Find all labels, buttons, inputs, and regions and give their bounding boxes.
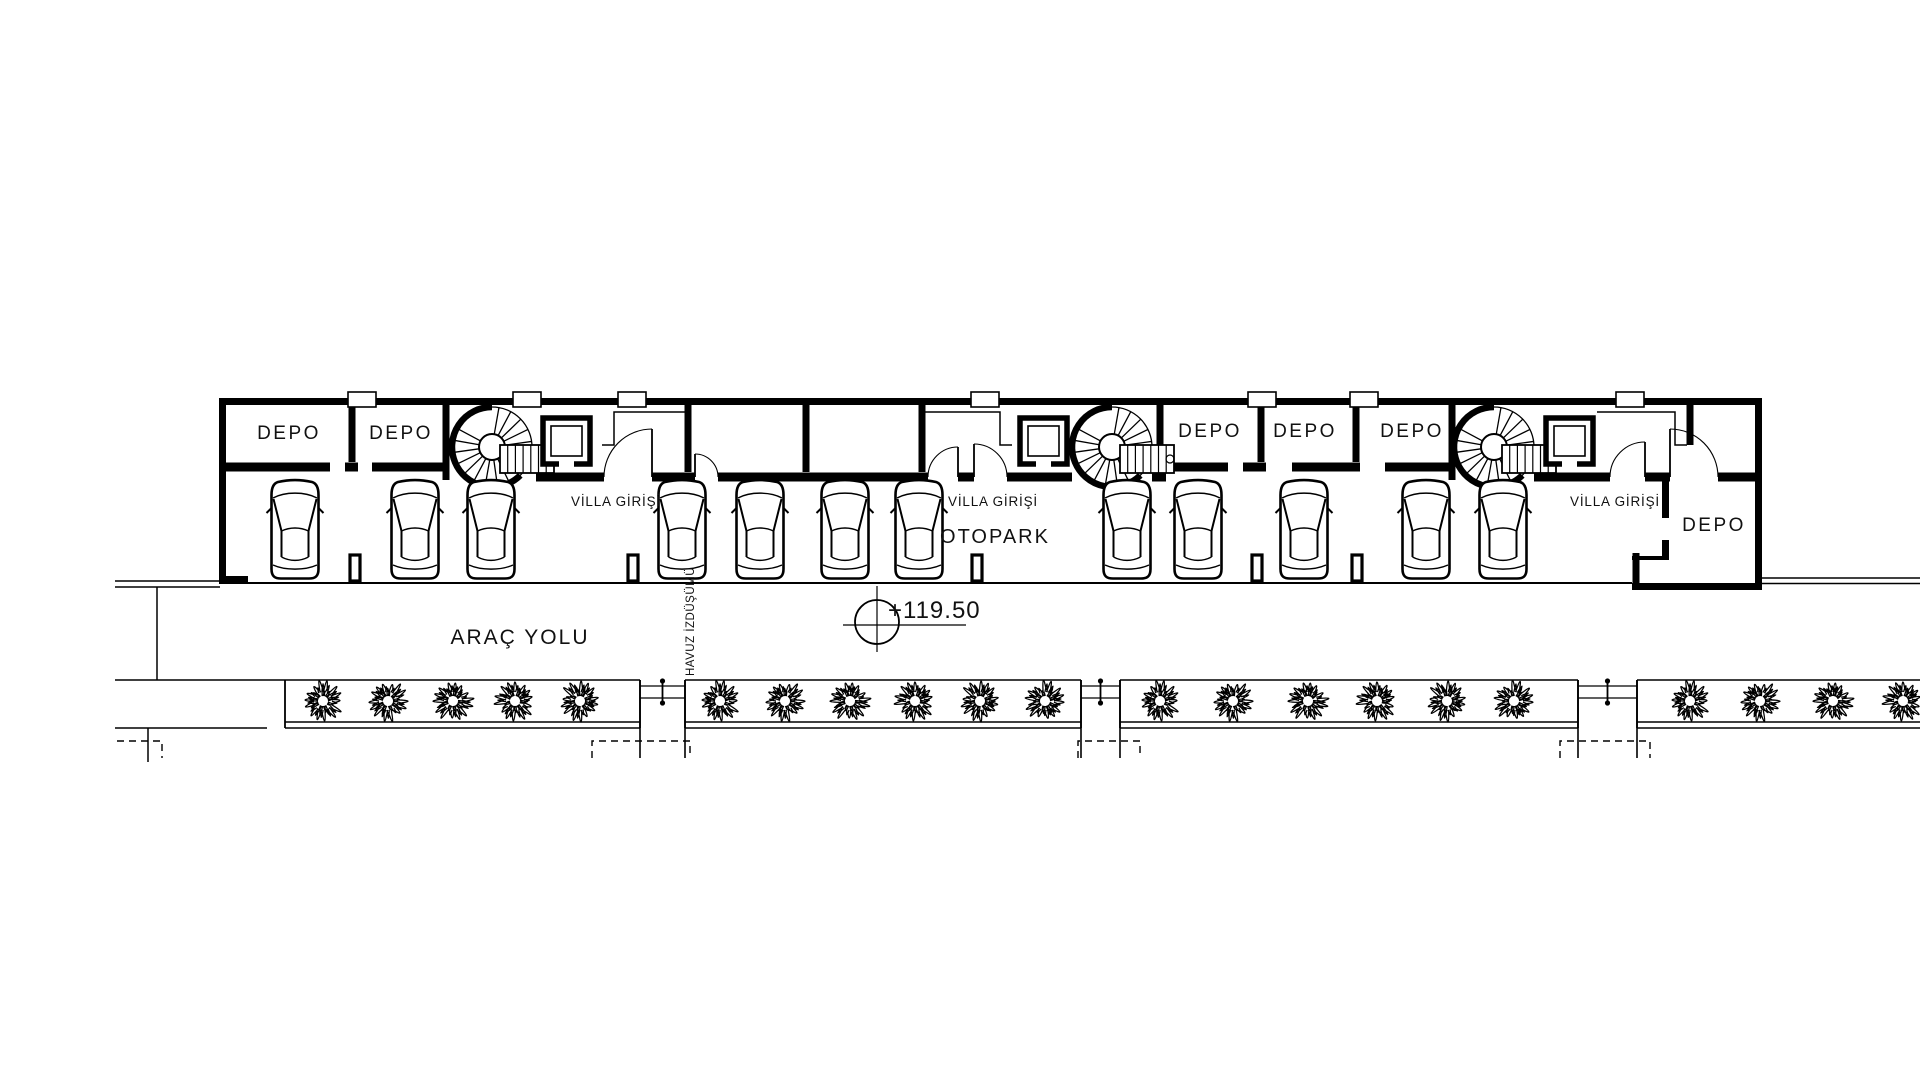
vent-opening (1350, 392, 1378, 407)
shrub-icon (1733, 674, 1787, 728)
label-depo: DEPO (1273, 421, 1337, 442)
spiral-stairs (452, 407, 1556, 487)
vent-opening (1616, 392, 1644, 407)
shrub-icon (1018, 675, 1072, 728)
car-icon (817, 480, 874, 578)
label-elevation: +119.50 (888, 597, 981, 624)
label-depo: DEPO (1178, 421, 1242, 442)
elevator-shaft (1020, 418, 1067, 467)
shrub-icon (758, 674, 812, 728)
shrub-icon (829, 682, 872, 721)
shrub-icon (559, 679, 600, 724)
door-swing (604, 429, 652, 477)
shrub-icon (1287, 682, 1330, 721)
door-swing (928, 447, 958, 477)
column (1252, 555, 1262, 581)
vent-opening (513, 392, 541, 407)
dashed-projection (117, 741, 162, 758)
car-icon (1475, 480, 1532, 578)
label-villa-girisi: VİLLA GİRİŞİ (1570, 494, 1660, 509)
elevation-marker: +119.50 (843, 586, 981, 652)
shrub-icon (1142, 680, 1178, 720)
shrub-icon (702, 680, 738, 720)
label-depo: DEPO (369, 423, 433, 444)
car-icon (1276, 480, 1333, 578)
vent-opening (618, 392, 646, 407)
car-icon (1170, 480, 1227, 578)
floor-plan-canvas: +119.50 DEPODEPODEPODEPODEPODEPOVİLLA Gİ… (0, 0, 1920, 1080)
shrub-icon (1812, 682, 1855, 721)
elevator-shaft (1546, 418, 1593, 467)
dashed-projection (592, 741, 690, 758)
label-area: ARAÇ YOLU (451, 626, 590, 649)
label-depo: DEPO (1682, 515, 1746, 536)
shrub-icon (432, 682, 475, 721)
vent-opening (971, 392, 999, 407)
car-icon (1099, 480, 1156, 578)
door-swing (1610, 442, 1645, 477)
shrub-icon (305, 680, 341, 720)
shrub-icon (1672, 680, 1708, 720)
car-icon (387, 480, 444, 578)
car-icon (654, 480, 711, 578)
shrub-icon (959, 679, 1000, 724)
car-icon (463, 480, 520, 578)
vent-opening (348, 392, 376, 407)
planter-box (685, 680, 1081, 728)
car-icon (891, 480, 948, 578)
shrub-icon (1876, 674, 1920, 728)
label-villa-girisi: VİLLA GİRİŞİ (571, 494, 661, 509)
car-icon (732, 480, 789, 578)
elevator-shaft (543, 418, 590, 467)
shrub-icon (488, 674, 541, 728)
shrub-icon (1487, 675, 1541, 728)
shrub-icon (1426, 679, 1467, 724)
car-icon (267, 480, 324, 578)
planter-strip (117, 674, 1920, 758)
column (972, 555, 982, 581)
door-swing (974, 444, 1007, 477)
shrub-icon (1206, 674, 1260, 728)
column (628, 555, 638, 581)
parked-cars (267, 480, 1532, 578)
column (350, 555, 360, 581)
label-area: OTOPARK (940, 526, 1050, 548)
label-depo: DEPO (1380, 421, 1444, 442)
label-villa-girisi: VİLLA GİRİŞİ (948, 494, 1038, 509)
shrub-icon (361, 674, 415, 728)
label-havuz-izdusumu: HAVUZ İZDÜŞÜMÜ (684, 567, 697, 676)
shrub-icon (1350, 674, 1403, 728)
dashed-projection (1078, 741, 1140, 758)
label-depo: DEPO (257, 423, 321, 444)
car-icon (1398, 480, 1455, 578)
door-swing (695, 454, 718, 477)
floor-plan-page: +119.50 DEPODEPODEPODEPODEPODEPOVİLLA Gİ… (0, 0, 1920, 1080)
column (1352, 555, 1362, 581)
shrub-icon (888, 674, 941, 728)
door-swing (1670, 429, 1718, 477)
vent-opening (1248, 392, 1276, 407)
